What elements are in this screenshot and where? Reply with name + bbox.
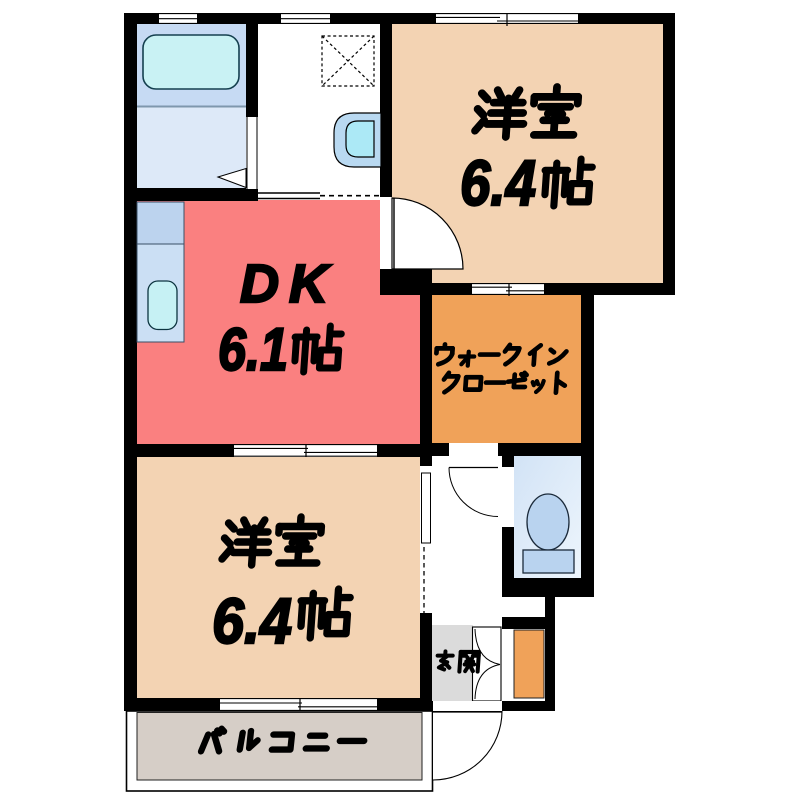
svg-text:6.1: 6.1 xyxy=(218,316,288,383)
svg-text:6.4: 6.4 xyxy=(460,147,536,219)
svg-text:DK: DK xyxy=(240,254,338,314)
svg-text:6.4: 6.4 xyxy=(212,585,292,657)
